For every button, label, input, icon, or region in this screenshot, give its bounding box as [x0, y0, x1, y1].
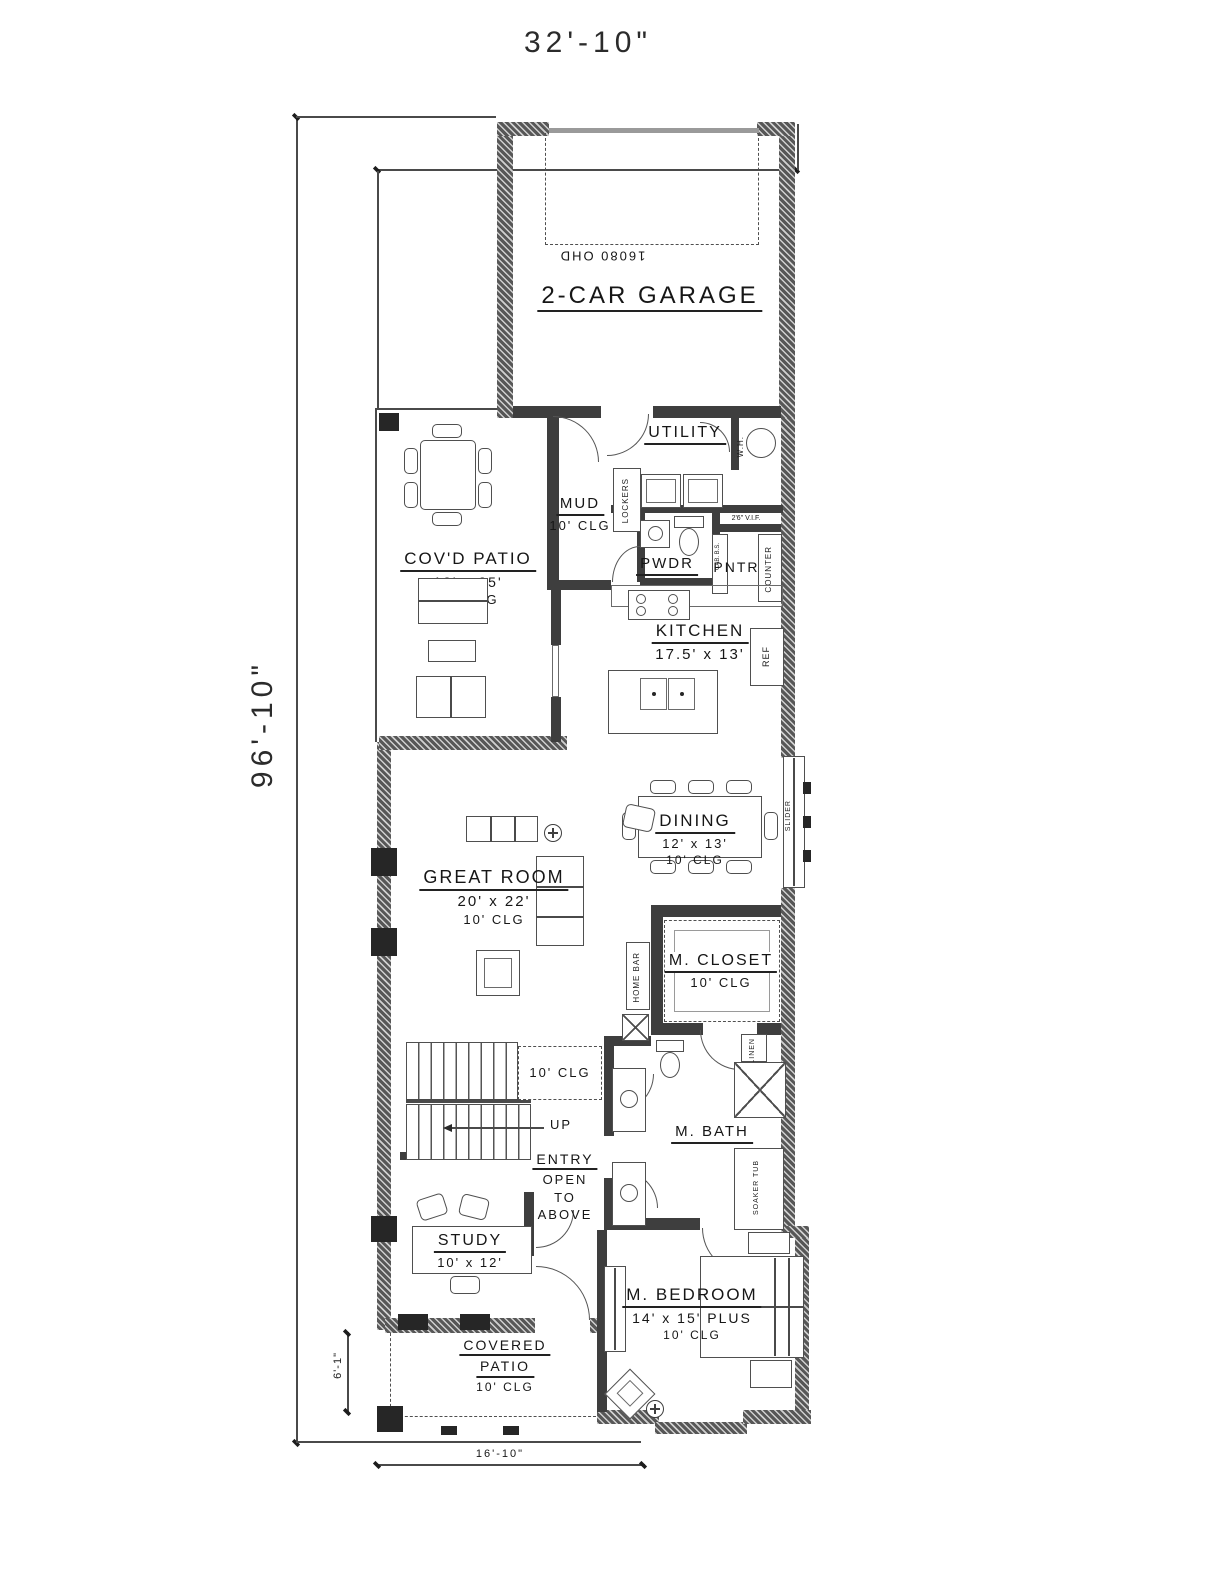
dining-label: DINING [655, 812, 735, 834]
bath-sink [620, 1090, 638, 1108]
porch-dashed-edge [390, 1333, 393, 1417]
bed-headboard-line [788, 1258, 790, 1356]
window-block [371, 1216, 397, 1242]
kitchen-label: KITCHEN [652, 622, 749, 644]
utility-label: UTILITY [644, 424, 726, 445]
patio-chair [432, 424, 462, 438]
mud-labels: MUD 10' CLG [549, 496, 610, 533]
exterior-wall-garage-top-right [757, 122, 795, 136]
window-block [371, 928, 397, 956]
wall-patio-kitchen-upper [551, 590, 561, 645]
m-closet-clg: 10' CLG [690, 976, 751, 990]
dining-chair [688, 780, 714, 794]
exterior-wall-bedroom-bottom-bump [655, 1422, 747, 1434]
dim-arrow [343, 1329, 351, 1337]
washer-inner [646, 479, 676, 503]
wall-closet-bottom-left [651, 1023, 703, 1035]
covered-patio-clg: 10' CLG [476, 1381, 534, 1394]
entry-above: ABOVE [538, 1208, 593, 1222]
wall-mud-bottom [547, 580, 611, 590]
desk-chair [450, 1276, 480, 1294]
sofa-line [490, 816, 492, 842]
dim-arrow [639, 1461, 647, 1469]
patio-sofa-line [450, 676, 452, 718]
porch-post [441, 1426, 457, 1435]
study-size: 10' x 12' [437, 1256, 503, 1270]
hall-clg-zone: 10' CLG [518, 1046, 602, 1100]
patio-chair [404, 482, 418, 508]
sink-drain [652, 692, 656, 696]
porch-dashed-edge [390, 1416, 596, 1419]
kitchen-size: 17.5' x 13' [655, 647, 744, 664]
mud-label: MUD [556, 496, 604, 516]
covered-patio-label2: PATIO [476, 1359, 534, 1377]
door-arc [536, 1266, 590, 1320]
mud-clg: 10' CLG [549, 519, 610, 533]
window-block [371, 848, 397, 876]
soaker-tub-label: SOAKER TUB [753, 1160, 761, 1215]
toilet-tank [656, 1040, 684, 1052]
wall-closet-top [651, 905, 781, 917]
home-bar-label: HOME BAR [633, 952, 642, 1003]
patio-chair [432, 512, 462, 526]
lockers-label: LOCKERS [622, 478, 631, 523]
dim-porch-depth: 6'-1" [332, 1352, 344, 1379]
patio-side-table [428, 640, 476, 662]
dim-overall-depth: 96'-10" [246, 660, 279, 788]
dining-clg: 10' CLG [666, 854, 724, 867]
garage-label: 2-CAR GARAGE [537, 283, 762, 312]
water-heater-label: W.H. [737, 436, 746, 457]
entry-to: TO [554, 1191, 576, 1205]
dining-size: 12' x 13' [662, 837, 728, 851]
wall-pntry-top [712, 524, 781, 532]
garage-door-note: 16080 OHD [559, 248, 646, 262]
slider-door-label: SLIDER [785, 800, 793, 831]
nightstand [750, 1360, 792, 1388]
great-room-size: 20' x 22' [458, 894, 531, 911]
wall-closet-left [651, 905, 663, 1035]
pwdr-label: PWDR [636, 556, 698, 576]
dining-chair [764, 812, 778, 840]
dim-overall-width: 32'-10" [524, 26, 652, 59]
door-arc [553, 416, 599, 462]
dining-labels: DINING 12' x 13' 10' CLG [655, 812, 735, 867]
entry-label: ENTRY [532, 1152, 597, 1170]
dim-ext-line [797, 124, 799, 170]
entry-open: OPEN [543, 1173, 588, 1187]
water-heater [746, 428, 776, 458]
entry-labels: ENTRY OPEN TO ABOVE [532, 1152, 597, 1222]
bar-cabinet [622, 1014, 649, 1041]
dresser-line [614, 1268, 616, 1350]
stairs-lower-run [406, 1104, 531, 1160]
patio-corner-post [379, 413, 399, 431]
study-label: STUDY [434, 1232, 506, 1253]
exterior-wall-right-upper [781, 418, 795, 758]
covered-patio-label1: COVERED [459, 1338, 550, 1356]
m-closet-labels: M. CLOSET 10' CLG [665, 952, 777, 990]
up-arrow-head [443, 1124, 452, 1132]
linen-label: LINEN [749, 1038, 757, 1064]
covered-patio-labels: COVERED PATIO 10' CLG [459, 1338, 550, 1394]
dim-arrow [343, 1408, 351, 1416]
m-bedroom-size: 14' x 15' PLUS [632, 1311, 752, 1326]
m-bedroom-clg: 10' CLG [663, 1329, 721, 1342]
kitchen-labels: KITCHEN 17.5' x 13' [652, 622, 749, 663]
dim-porch-width: 16'-10" [476, 1448, 524, 1460]
burner [668, 594, 678, 604]
m-closet-label: M. CLOSET [665, 952, 777, 973]
bay-window-mullion-line [793, 758, 795, 886]
dim-ext-line [296, 116, 496, 118]
patio-chair [404, 448, 418, 474]
nightstand [748, 1232, 790, 1254]
study-chair [415, 1192, 448, 1222]
study-labels: STUDY 10' x 12' [434, 1232, 506, 1270]
floor-plan: 32'-10" 96'-10" 6'-1" 16'-10" SLIDER [0, 0, 1224, 1584]
burner [668, 606, 678, 616]
ceiling-fan-icon [646, 1400, 664, 1418]
dim-ext-line [377, 171, 379, 409]
burner [636, 606, 646, 616]
bed-headboard-line [774, 1258, 776, 1356]
great-room-labels: GREAT ROOM 20' x 22' 10' CLG [419, 868, 568, 928]
sofa-line [514, 816, 516, 842]
patio-edge-left [375, 410, 377, 742]
dim-ext-line [296, 1441, 641, 1443]
m-bedroom-labels: M. BEDROOM 14' x 15' PLUS 10' CLG [622, 1286, 761, 1342]
dim-line-porch [347, 1332, 349, 1414]
patio-slider-opening [552, 645, 559, 697]
great-room-clg: 10' CLG [463, 913, 524, 927]
porch-post [503, 1426, 519, 1435]
sink-drain [680, 692, 684, 696]
great-room-label: GREAT ROOM [419, 868, 568, 891]
patio-edge-top [375, 408, 497, 410]
stairs-divider [406, 1099, 531, 1103]
window-block [398, 1314, 428, 1330]
toilet-tank [674, 516, 704, 528]
exterior-wall-garage-left [497, 122, 513, 418]
bedroom-chair-inner [617, 1380, 644, 1407]
sofa [466, 816, 538, 842]
patio-chair [478, 482, 492, 508]
porch-post [377, 1406, 403, 1432]
up-label: UP [550, 1118, 572, 1132]
study-chair [458, 1193, 490, 1221]
refrigerator-label: REF [762, 646, 772, 667]
exterior-wall-garage-top-left [497, 122, 549, 136]
dryer-inner [688, 479, 718, 503]
m-bedroom-label: M. BEDROOM [622, 1286, 761, 1308]
stairs-upper-run [406, 1042, 518, 1100]
wall-patio-kitchen-lower [551, 697, 561, 742]
door-arc [607, 414, 649, 456]
coffee-table-inner [484, 958, 512, 988]
pwdr-sink [648, 526, 663, 541]
patio-chair [478, 448, 492, 474]
exterior-wall-garage-right [779, 122, 795, 418]
exterior-wall-bedroom-bottom-right [743, 1410, 811, 1424]
bay-window-mullion [803, 816, 811, 828]
exterior-wall-greatroom-top [379, 736, 567, 750]
window-block [460, 1314, 490, 1330]
ceiling-fan-icon [544, 824, 562, 842]
up-arrow-line [452, 1127, 544, 1129]
shower [734, 1062, 786, 1118]
bath-sink [620, 1184, 638, 1202]
burner [636, 594, 646, 604]
dim-line-bottom [377, 1464, 645, 1466]
toilet-bowl [660, 1052, 680, 1078]
wall-garage-bottom-right [653, 406, 781, 418]
bay-window-mullion [803, 782, 811, 794]
dim-arrow [373, 1461, 381, 1469]
patio-sofa-line [418, 600, 488, 602]
garage-door-outline [545, 133, 759, 245]
dining-chair [650, 780, 676, 794]
patio-table [420, 440, 476, 510]
pntry-note: 2'6" V.I.F. [732, 515, 761, 523]
toilet-bowl [679, 528, 699, 556]
m-bath-label: M. BATH [671, 1124, 753, 1144]
dining-chair [726, 780, 752, 794]
covd-patio-label: COV'D PATIO [400, 550, 536, 572]
bay-window-mullion [803, 850, 811, 862]
hall-clg-label: 10' CLG [529, 1066, 590, 1080]
dim-line-left [296, 116, 298, 1444]
